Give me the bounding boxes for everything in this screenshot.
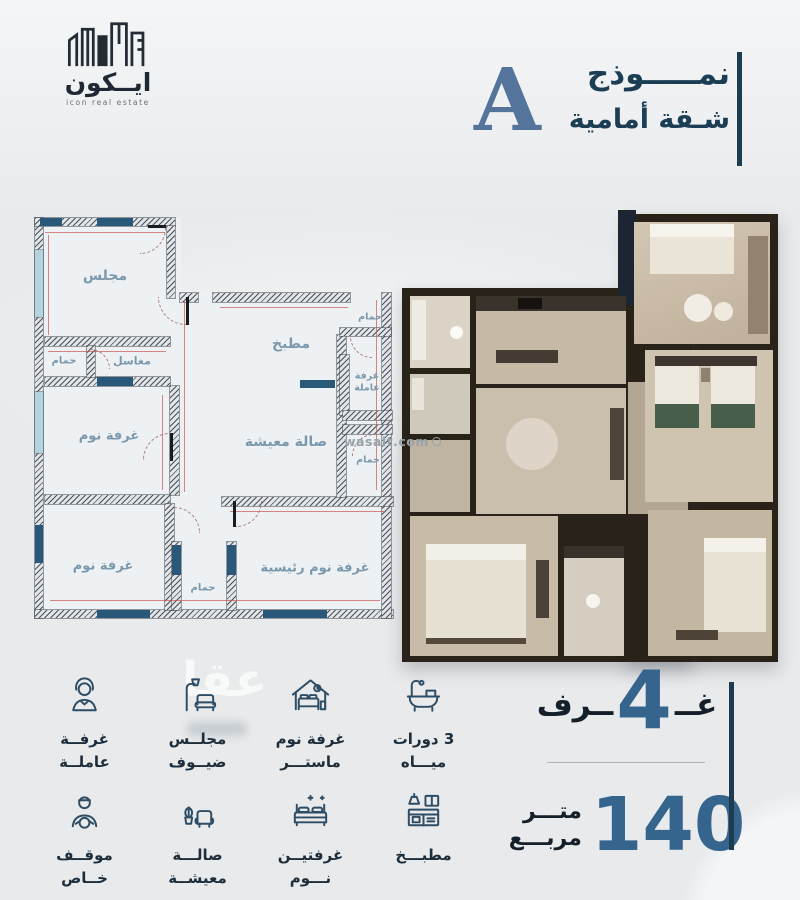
feature-label: عاملــة — [59, 751, 110, 774]
watermark-site-text: wasalt.com — [344, 434, 429, 449]
dimension-line — [184, 300, 185, 492]
feature-label: مطبـــخ — [395, 844, 451, 867]
feature-label: ميـــاه — [401, 751, 446, 774]
living-hall-icon — [174, 790, 221, 837]
feature-maid-room: غرفــة عاملــة — [28, 664, 141, 780]
window — [97, 377, 133, 386]
two-bedrooms-icon — [287, 790, 334, 837]
door-leaf — [186, 297, 189, 325]
feature-label: نـــوم — [290, 867, 331, 890]
stat-rooms-number: 4 — [616, 661, 672, 741]
feature-bathrooms: 3 دورات ميـــاه — [367, 664, 480, 780]
feature-label: صالـــة — [172, 844, 222, 867]
feature-label: غرفتيــن — [278, 844, 343, 867]
bathrooms-icon — [400, 674, 447, 721]
window — [263, 610, 327, 618]
window — [97, 610, 150, 618]
feature-label: خــاص — [61, 867, 108, 890]
wall — [382, 293, 391, 618]
wall — [167, 226, 175, 298]
window-glass — [35, 392, 43, 453]
room-label: حمام — [356, 455, 380, 466]
feature-label: معيشــة — [168, 867, 227, 890]
room-label: حمام — [358, 312, 382, 323]
stat-area-unit-bottom: مربـــع — [509, 826, 582, 851]
maid-icon — [61, 674, 108, 721]
render-hall — [410, 440, 470, 512]
private-parking-icon — [61, 790, 108, 837]
feature-living-hall: صالـــة معيشــة — [141, 780, 254, 896]
feature-label: مجلــس — [169, 728, 227, 751]
render-kitchen — [476, 296, 626, 384]
feature-kitchen: مطبـــخ — [367, 780, 480, 896]
counter — [300, 380, 335, 388]
door-frame — [227, 545, 236, 575]
room-label: غرفة نوم — [79, 429, 139, 444]
wall — [45, 337, 170, 346]
feature-master-bedroom: غرفة نوم ماستـــر — [254, 664, 367, 780]
dimension-line — [50, 600, 380, 601]
feature-label: 3 دورات — [393, 728, 455, 751]
brand-name-english: icon real estate — [52, 98, 164, 107]
stat-rooms-prefix: غــ — [675, 687, 717, 723]
render-bathroom — [410, 374, 470, 434]
feature-two-bedrooms: غرفتيــن نـــوم — [254, 780, 367, 896]
feature-label: ماستـــر — [280, 751, 341, 774]
room-label: غرفة نوم رئيسية — [260, 561, 369, 576]
brand-name-arabic: ايــكون — [52, 70, 164, 96]
wall — [340, 355, 349, 415]
room-label: مطبخ — [272, 336, 310, 352]
stats-accent-bar — [729, 682, 734, 850]
door-frame — [172, 545, 181, 575]
feature-label: غرفــة — [60, 728, 109, 751]
title-accent-bar — [737, 52, 742, 166]
feature-label: ضيــوف — [169, 751, 227, 774]
render-bedroom — [410, 516, 558, 656]
room-label: مغاسل — [113, 355, 151, 368]
stat-area-number: 140 — [591, 788, 745, 862]
dimension-line — [220, 307, 348, 308]
wall — [35, 610, 393, 618]
wall — [340, 328, 391, 336]
room-label: صالة معيشة — [245, 434, 327, 450]
dimension-line — [48, 235, 49, 335]
room-label: حمام — [191, 583, 216, 594]
render-bedroom-two-beds — [645, 350, 773, 502]
watermark-site: wasalt.com — [344, 434, 441, 449]
stat-area-unit-top: متـــر — [509, 799, 582, 824]
flyer-page: عقا ايــكون icon real estate نمـــــوذج … — [0, 0, 800, 900]
master-bedroom-icon — [287, 674, 334, 721]
stat-rooms: غــ 4 ــرف — [540, 660, 714, 750]
render-master-bedroom — [634, 222, 770, 344]
floor-plan-2d: مجلس حمام مغاسل غرفة نوم غرفة نوم مطبخ ح… — [30, 205, 398, 627]
window-glass — [35, 250, 43, 317]
stat-rooms-suffix: ــرف — [537, 687, 614, 723]
render-living — [476, 388, 626, 514]
stats-divider — [547, 762, 705, 763]
guest-majlis-icon — [174, 674, 221, 721]
logo: ايــكون icon real estate — [52, 18, 164, 107]
feature-label: غرفة نوم — [276, 728, 346, 751]
window — [35, 525, 43, 563]
wall — [45, 495, 170, 504]
buildings-logo-icon — [62, 18, 154, 70]
floor-plan-3d — [398, 210, 793, 662]
render-bathroom — [564, 546, 624, 656]
dimension-line — [48, 351, 166, 352]
room-label: مجلس — [83, 268, 127, 284]
door-leaf — [170, 433, 173, 461]
model-letter: A — [474, 58, 541, 144]
wall — [213, 293, 350, 302]
window — [40, 218, 62, 226]
features-grid: غرفــة عاملــة مجلــس ضيــوف — [28, 664, 480, 896]
kitchen-icon — [400, 790, 447, 837]
location-pin-icon — [432, 437, 441, 446]
render-bedroom — [648, 510, 772, 656]
render-bathroom — [410, 296, 470, 368]
wall — [343, 425, 392, 434]
window — [97, 218, 133, 226]
feature-label: موقــف — [56, 844, 113, 867]
room-label: غرفة نوم — [73, 559, 133, 574]
stat-area: 140 متـــر مربـــع — [540, 780, 714, 870]
feature-guest-majlis: مجلــس ضيــوف — [141, 664, 254, 780]
room-label: حمام — [52, 356, 77, 367]
wall — [343, 411, 392, 420]
room-label: غرفة عاملة — [350, 371, 384, 396]
feature-private-parking: موقــف خــاص — [28, 780, 141, 896]
